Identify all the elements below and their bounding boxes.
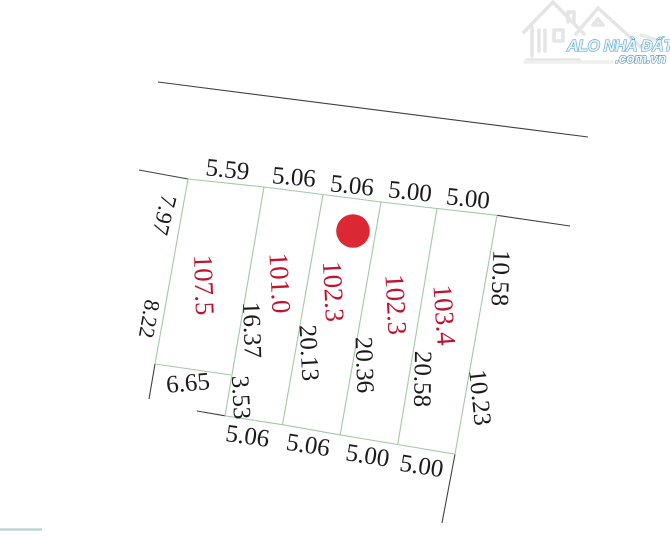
svg-text:6.65: 6.65 [165,368,211,399]
svg-text:20.58: 20.58 [408,351,436,408]
svg-text:5.59: 5.59 [204,154,250,185]
svg-text:5.00: 5.00 [387,176,433,207]
svg-text:20.36: 20.36 [350,336,379,393]
svg-text:102.3: 102.3 [379,273,412,335]
svg-text:3.53: 3.53 [226,375,255,420]
svg-text:10.58: 10.58 [486,249,515,306]
svg-text:20.13: 20.13 [294,324,324,382]
svg-text:101.0: 101.0 [263,252,296,314]
svg-text:16.37: 16.37 [237,301,266,358]
svg-text:5.06: 5.06 [329,170,375,201]
svg-text:107.5: 107.5 [188,254,220,316]
svg-text:5.06: 5.06 [271,162,317,193]
svg-text:.com.vn: .com.vn [615,50,666,66]
svg-text:103.4: 103.4 [427,284,461,347]
svg-text:5.00: 5.00 [445,183,491,214]
svg-text:102.3: 102.3 [317,260,350,322]
